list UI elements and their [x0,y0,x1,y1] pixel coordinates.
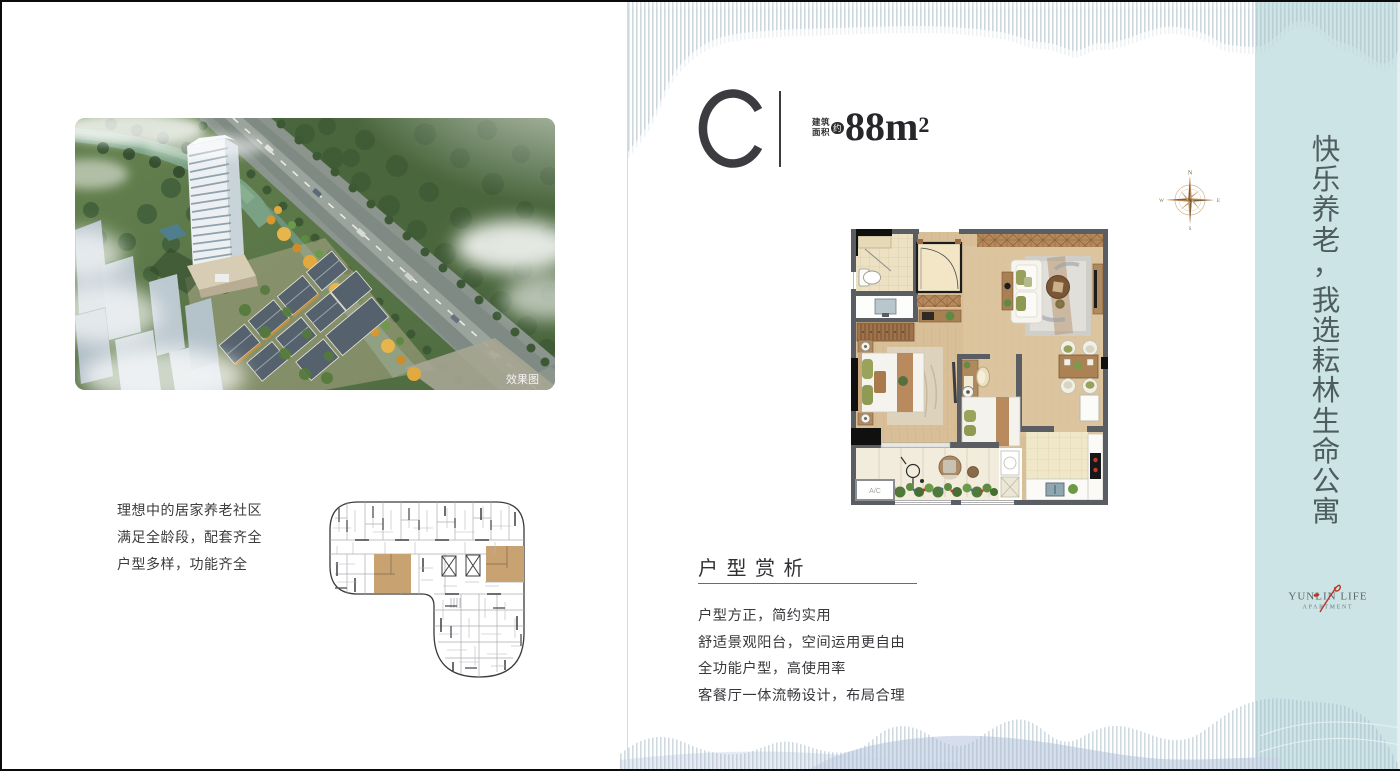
svg-text:E: E [1217,199,1220,204]
svg-text:效果图: 效果图 [506,372,539,386]
svg-text:N: N [1188,171,1193,177]
svg-text:S: S [1189,227,1192,231]
svg-text:A/C: A/C [869,488,881,495]
svg-text:YUNLIN LIFE: YUNLIN LIFE [1288,591,1367,603]
svg-text:APARTMENT: APARTMENT [1303,605,1354,611]
svg-text:W: W [1159,199,1164,204]
